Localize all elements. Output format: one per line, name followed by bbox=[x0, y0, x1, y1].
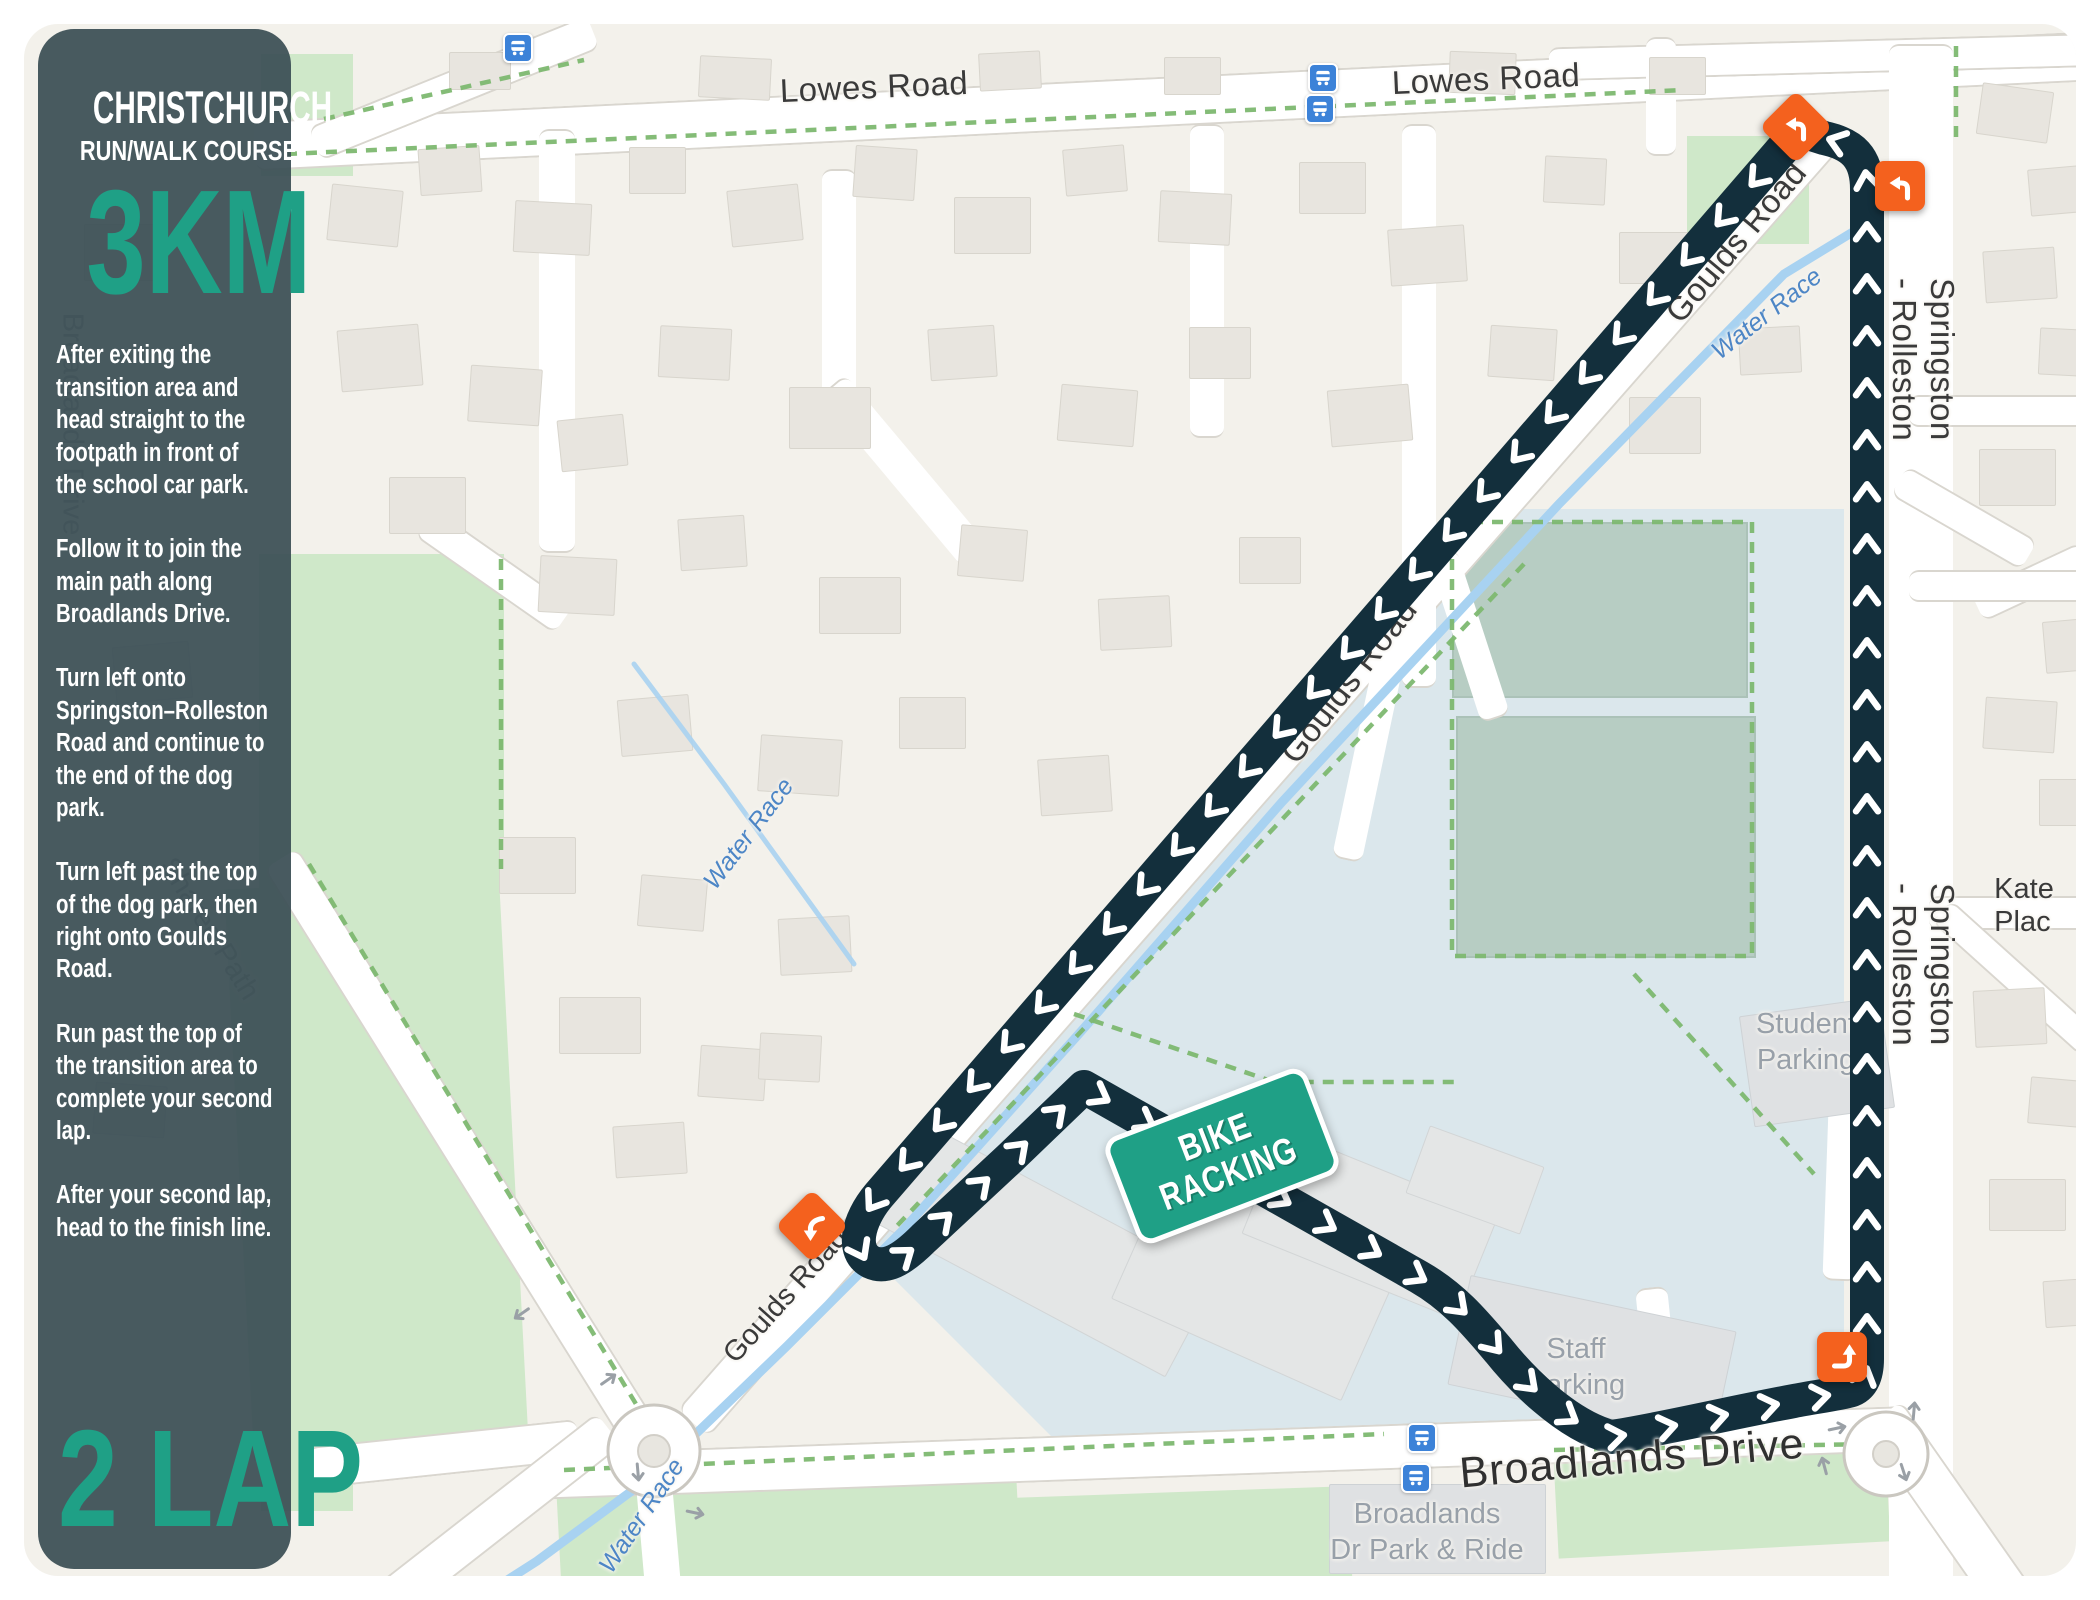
course-instruction-5: Run past the top of the transition area … bbox=[56, 1018, 273, 1148]
route-line bbox=[859, 130, 1867, 1437]
course-infographic: Lowes RoadLowes RoadGoulds RoadGoulds Ro… bbox=[24, 24, 2076, 1576]
turn-arrow-icon bbox=[1824, 1339, 1860, 1375]
turn-arrow-icon bbox=[1778, 109, 1814, 145]
turn-arrow-icon bbox=[1882, 168, 1918, 204]
course-lap-count: 2 LAP bbox=[58, 1417, 363, 1541]
course-info-sidebar: CHRISTCHURCH RUN/WALK COURSE 3KM After e… bbox=[38, 29, 291, 1569]
course-instruction-3: Turn left onto Springston–Rolleston Road… bbox=[56, 662, 273, 824]
run-course-route bbox=[24, 24, 2076, 1576]
turn-marker-springston-top bbox=[1875, 161, 1925, 211]
course-instructions: After exiting the transition area and he… bbox=[56, 339, 273, 1244]
course-instruction-4: Turn left past the top of the dog park, … bbox=[56, 856, 273, 986]
course-instruction-6: After your second lap, head to the finis… bbox=[56, 1179, 273, 1244]
course-instruction-1: After exiting the transition area and he… bbox=[56, 339, 273, 501]
course-title: CHRISTCHURCH bbox=[93, 85, 236, 131]
turn-marker-broadlands-corner bbox=[1817, 1332, 1867, 1382]
turn-arrow-icon bbox=[794, 1208, 830, 1244]
course-instruction-2: Follow it to join the main path along Br… bbox=[56, 533, 273, 630]
course-distance: 3KM bbox=[86, 173, 242, 314]
